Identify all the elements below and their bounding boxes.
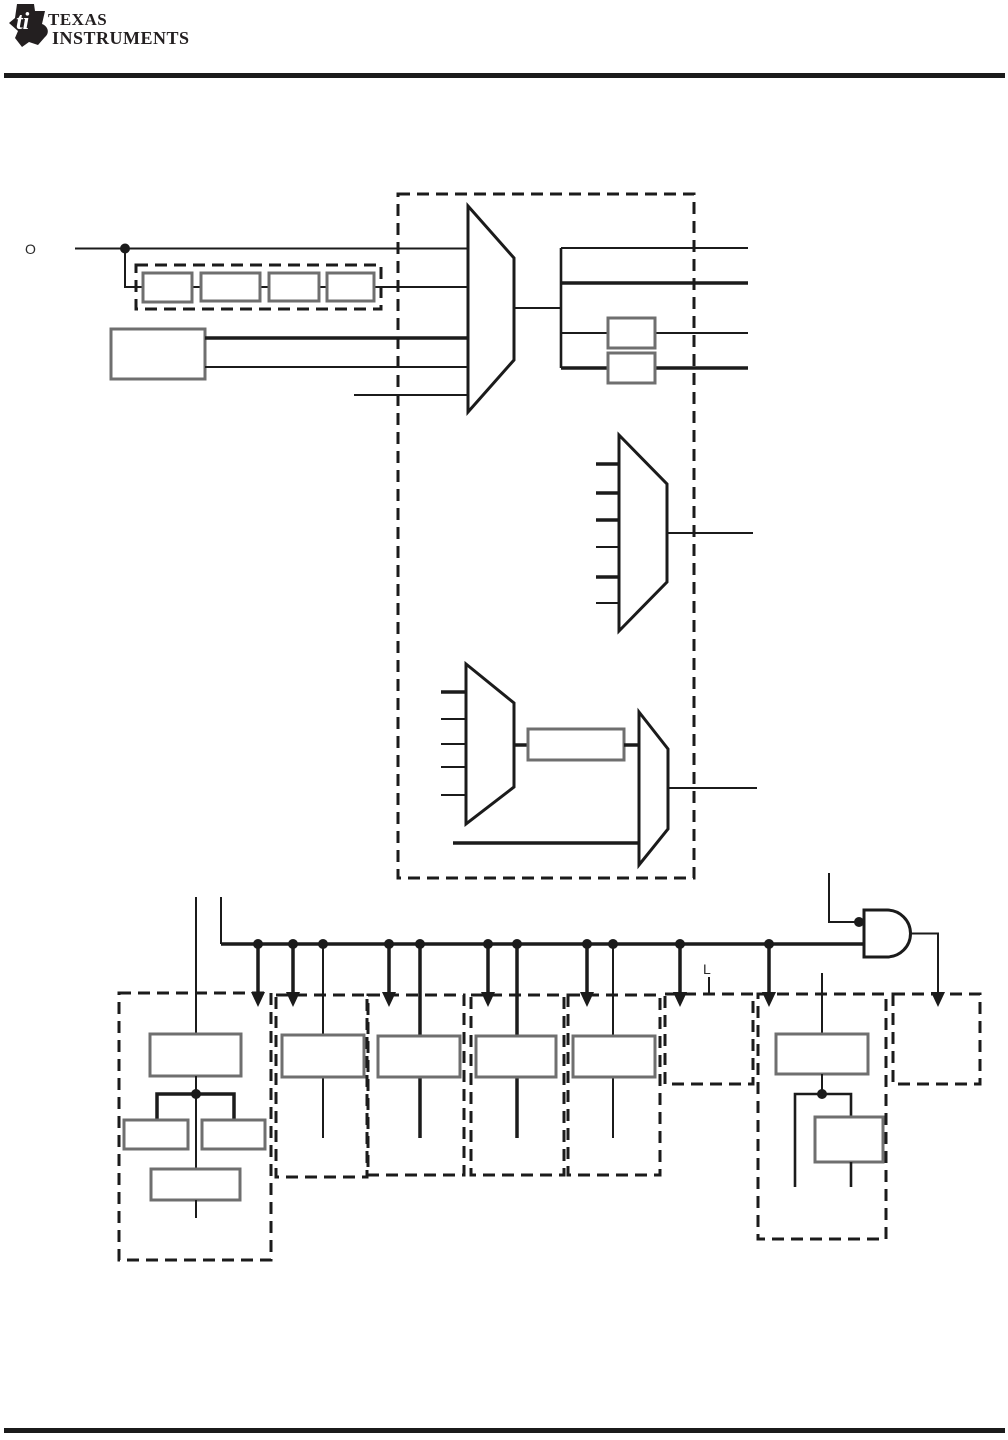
divider-stage-box (269, 273, 319, 301)
module-box (151, 1169, 240, 1200)
divider-stage-box (143, 273, 192, 302)
module-box (573, 1036, 655, 1077)
mux3-mux4-group (441, 664, 757, 865)
module-dashed-box-8 (893, 994, 980, 1084)
and-gate (864, 910, 910, 957)
module-6-group (665, 994, 753, 1084)
mux2 (619, 435, 667, 631)
module-box (282, 1035, 364, 1077)
clock-bus-section: L (196, 873, 945, 1138)
wire (157, 1094, 196, 1120)
module-box (476, 1036, 556, 1077)
mux4 (639, 712, 668, 865)
page-canvas: ti TEXAS INSTRUMENTS O (0, 0, 1008, 1440)
wire (829, 873, 856, 922)
footer-rule (4, 1428, 1005, 1433)
oscillator-input-section: O (25, 241, 468, 395)
label-l: L (703, 961, 711, 977)
module-3-group (368, 995, 464, 1175)
module-box (124, 1120, 188, 1149)
module-dashed-box-2 (276, 995, 367, 1177)
wire (822, 1094, 851, 1117)
prescale-box (528, 729, 624, 760)
mux1 (468, 206, 514, 412)
mux3 (466, 664, 514, 824)
ti-logo: ti TEXAS INSTRUMENTS (9, 4, 190, 48)
wire (910, 934, 938, 995)
module-8-group (893, 994, 980, 1084)
header-rule (4, 73, 1005, 78)
module-2-group (276, 995, 367, 1177)
logo-text-instruments: INSTRUMENTS (52, 28, 190, 48)
bus-arrows (251, 944, 776, 1007)
module-1-group (119, 993, 271, 1260)
module-box (815, 1117, 883, 1162)
divider-stage-box (201, 273, 260, 301)
module-box (150, 1034, 241, 1076)
wire (125, 249, 143, 288)
divider-stage-box (327, 273, 374, 301)
gate-input-dot (854, 917, 864, 927)
logo-text-texas: TEXAS (48, 10, 107, 29)
mux1-group (468, 206, 748, 412)
module-dashed-box-6 (665, 994, 753, 1084)
ti-bug-letters: ti (16, 9, 30, 35)
module-dashed-box-3 (368, 995, 464, 1175)
datasheet-page: ti TEXAS INSTRUMENTS O (0, 0, 1008, 1440)
mux2-group (596, 435, 753, 631)
module-box (202, 1120, 265, 1149)
post-divider-box (608, 353, 655, 383)
module-box (776, 1034, 868, 1074)
label-o: O (25, 241, 36, 257)
post-divider-box (608, 318, 655, 348)
control-box (111, 329, 205, 379)
module-box (378, 1036, 460, 1077)
wire (196, 1094, 234, 1120)
